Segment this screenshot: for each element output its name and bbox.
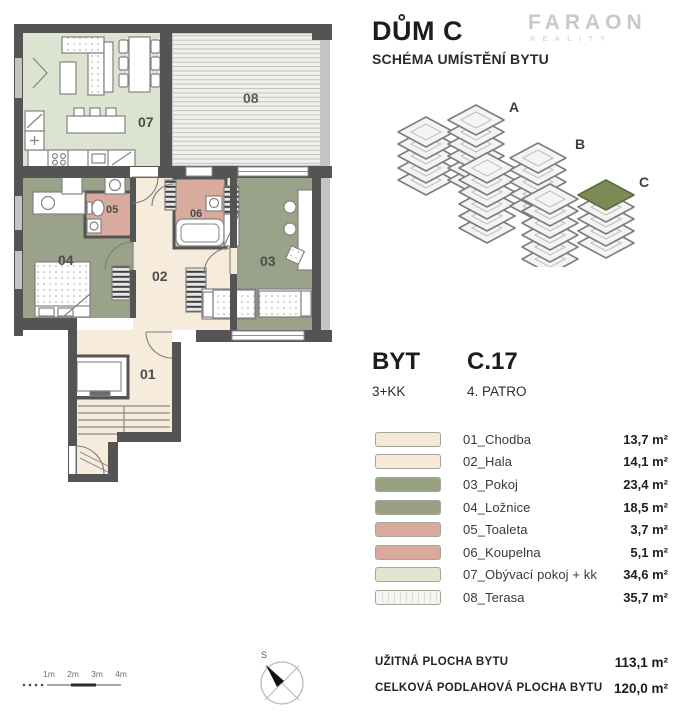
- building-label-c: C: [639, 174, 649, 190]
- legend-area: 5,1 m²: [630, 545, 668, 560]
- building-label-a: A: [509, 99, 519, 115]
- compass-rose: S: [252, 645, 314, 711]
- label-room-04: 04: [58, 252, 74, 268]
- total-label: CELKOVÁ PODLAHOVÁ PLOCHA BYTU: [375, 682, 602, 694]
- legend-swatch: [375, 567, 441, 582]
- total-label: UŽITNÁ PLOCHA BYTU: [375, 656, 508, 668]
- legend-area: 23,4 m²: [623, 477, 668, 492]
- scale-tick-3m: 3m: [91, 669, 103, 679]
- legend-area: 35,7 m²: [623, 590, 668, 605]
- coffee-table: [60, 62, 76, 94]
- building-location-diagram: A B C: [378, 85, 688, 267]
- total-floor-area-row: CELKOVÁ PODLAHOVÁ PLOCHA BYTU 120,0 m²: [375, 675, 668, 701]
- total-value: 120,0 m²: [614, 681, 668, 696]
- legend-label: 08_Terasa: [463, 590, 525, 605]
- bed-04: [35, 262, 90, 317]
- unit-info: BYTC.17 3+KK4. PATRO: [372, 348, 632, 401]
- chair-03-a: [284, 201, 296, 213]
- total-value: 113,1 m²: [615, 655, 668, 670]
- page-title: DŮM C: [372, 16, 549, 47]
- washing-machine: [105, 177, 125, 194]
- label-room-06: 06: [190, 208, 202, 220]
- brand-logo-name: FARAON: [528, 12, 647, 33]
- legend-label: 06_Koupelna: [463, 545, 541, 560]
- scale-tick-4m: 4m: [115, 669, 127, 679]
- legend-row: 07_Obývací pokoj + kk 34,6 m²: [375, 564, 668, 587]
- legend-area: 18,5 m²: [623, 500, 668, 515]
- building-label-b: B: [575, 136, 585, 152]
- label-room-07: 07: [138, 114, 154, 130]
- legend-label: 07_Obývací pokoj + kk: [463, 567, 597, 582]
- compass-north-label: S: [261, 650, 267, 660]
- legend-swatch: [375, 590, 441, 605]
- floor-plan: 07 08 05 06 04 02 03 01: [0, 0, 360, 500]
- label-room-05: 05: [106, 204, 118, 216]
- vanity-04: [33, 192, 85, 214]
- label-room-01: 01: [140, 366, 156, 382]
- room-chodba-01: [77, 330, 172, 474]
- total-usable-area-row: UŽITNÁ PLOCHA BYTU 113,1 m²: [375, 649, 668, 675]
- cabinet-05: [62, 177, 82, 194]
- label-room-08: 08: [243, 90, 259, 106]
- legend-swatch: [375, 522, 441, 537]
- unit-code: C.17: [467, 348, 518, 376]
- scale-bar: 1m 2m 3m 4m: [22, 666, 172, 694]
- legend-row: 03_Pokoj 23,4 m²: [375, 473, 668, 496]
- unit-label: BYT: [372, 348, 467, 376]
- wardrobe-04: [112, 266, 130, 300]
- legend-row: 06_Koupelna 5,1 m²: [375, 541, 668, 564]
- legend-area: 13,7 m²: [623, 432, 668, 447]
- brand-logo: FARAON REALITY: [528, 12, 647, 43]
- legend-swatch: [375, 545, 441, 560]
- legend-area: 3,7 m²: [630, 522, 668, 537]
- area-totals: UŽITNÁ PLOCHA BYTU 113,1 m² CELKOVÁ PODL…: [375, 649, 668, 701]
- scale-tick-2m: 2m: [67, 669, 79, 679]
- chair-03-b: [284, 223, 296, 235]
- bed-03-right: [258, 289, 312, 317]
- legend-row: 08_Terasa 35,7 m²: [375, 586, 668, 609]
- legend-label: 02_Hala: [463, 454, 512, 469]
- dining-table-set: [119, 37, 160, 92]
- legend-row: 04_Ložnice 18,5 m²: [375, 496, 668, 519]
- washbasin-06: [206, 196, 222, 211]
- legend-swatch: [375, 500, 441, 515]
- scale-tick-1m: 1m: [43, 669, 55, 679]
- legend-swatch: [375, 454, 441, 469]
- legend-area: 14,1 m²: [623, 454, 668, 469]
- legend-row: 01_Chodba 13,7 m²: [375, 428, 668, 451]
- header: DŮM C SCHÉMA UMÍSTĚNÍ BYTU: [372, 16, 549, 67]
- washbasin-05: [87, 219, 101, 233]
- wardrobe-living: [25, 111, 44, 150]
- brand-logo-tagline: REALITY: [528, 36, 647, 43]
- unit-layout: 3+KK: [372, 384, 467, 399]
- kitchen-counter: [28, 150, 135, 167]
- bed-03-left: [202, 289, 256, 319]
- legend-label: 03_Pokoj: [463, 477, 518, 492]
- wc: [87, 200, 104, 216]
- legend-swatch: [375, 432, 441, 447]
- legend-area: 34,6 m²: [623, 567, 668, 582]
- kitchen-island: [67, 108, 125, 133]
- legend-label: 04_Ložnice: [463, 500, 531, 515]
- label-room-03: 03: [260, 253, 276, 269]
- legend-label: 01_Chodba: [463, 432, 531, 447]
- elevator: [70, 356, 128, 398]
- room-legend: 01_Chodba 13,7 m² 02_Hala 14,1 m² 03_Pok…: [375, 428, 668, 609]
- unit-floor: 4. PATRO: [467, 384, 527, 399]
- page-subtitle: SCHÉMA UMÍSTĚNÍ BYTU: [372, 51, 549, 67]
- label-room-02: 02: [152, 268, 168, 284]
- legend-row: 05_Toaleta 3,7 m²: [375, 518, 668, 541]
- building-c-stacks: [522, 180, 634, 267]
- legend-label: 05_Toaleta: [463, 522, 528, 537]
- bathtub: [176, 219, 224, 246]
- legend-swatch: [375, 477, 441, 492]
- legend-row: 02_Hala 14,1 m²: [375, 451, 668, 474]
